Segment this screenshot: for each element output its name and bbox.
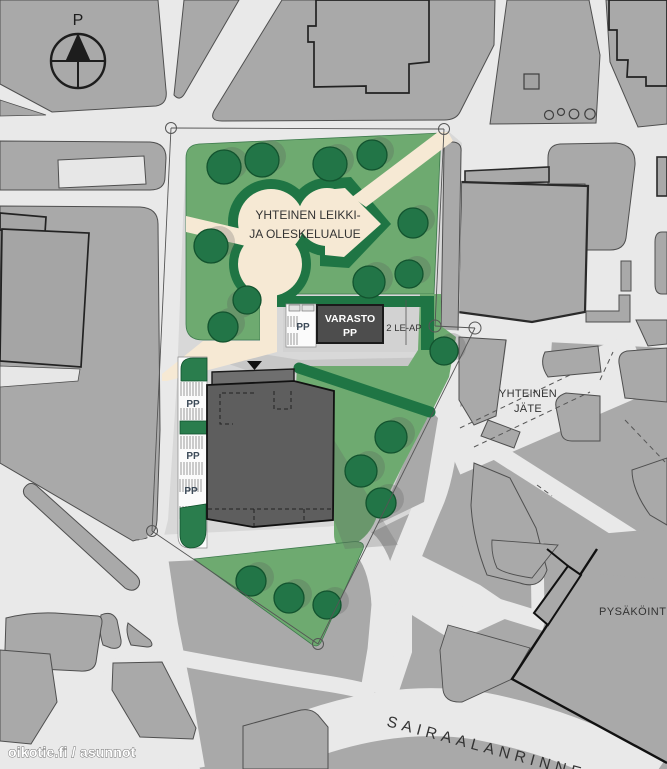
svg-text:VARASTO: VARASTO [325, 313, 375, 325]
svg-text:PP: PP [296, 322, 310, 333]
svg-text:JA OLESKELUALUE: JA OLESKELUALUE [249, 227, 360, 241]
svg-text:YHTEINEN LEIKKI-: YHTEINEN LEIKKI- [255, 208, 360, 222]
svg-text:PP: PP [186, 399, 200, 410]
svg-text:PP: PP [343, 327, 357, 339]
svg-text:YHTEINEN: YHTEINEN [499, 388, 557, 400]
svg-text:2 LE-AP: 2 LE-AP [386, 323, 421, 334]
svg-text:oikotie.fi / asunnot: oikotie.fi / asunnot [8, 744, 136, 760]
svg-text:PYSÄKÖINTI: PYSÄKÖINTI [599, 606, 667, 618]
svg-text:JÄTE: JÄTE [514, 403, 542, 415]
svg-text:PP: PP [186, 451, 200, 462]
svg-text:PP: PP [184, 486, 198, 497]
svg-text:P: P [73, 12, 84, 29]
